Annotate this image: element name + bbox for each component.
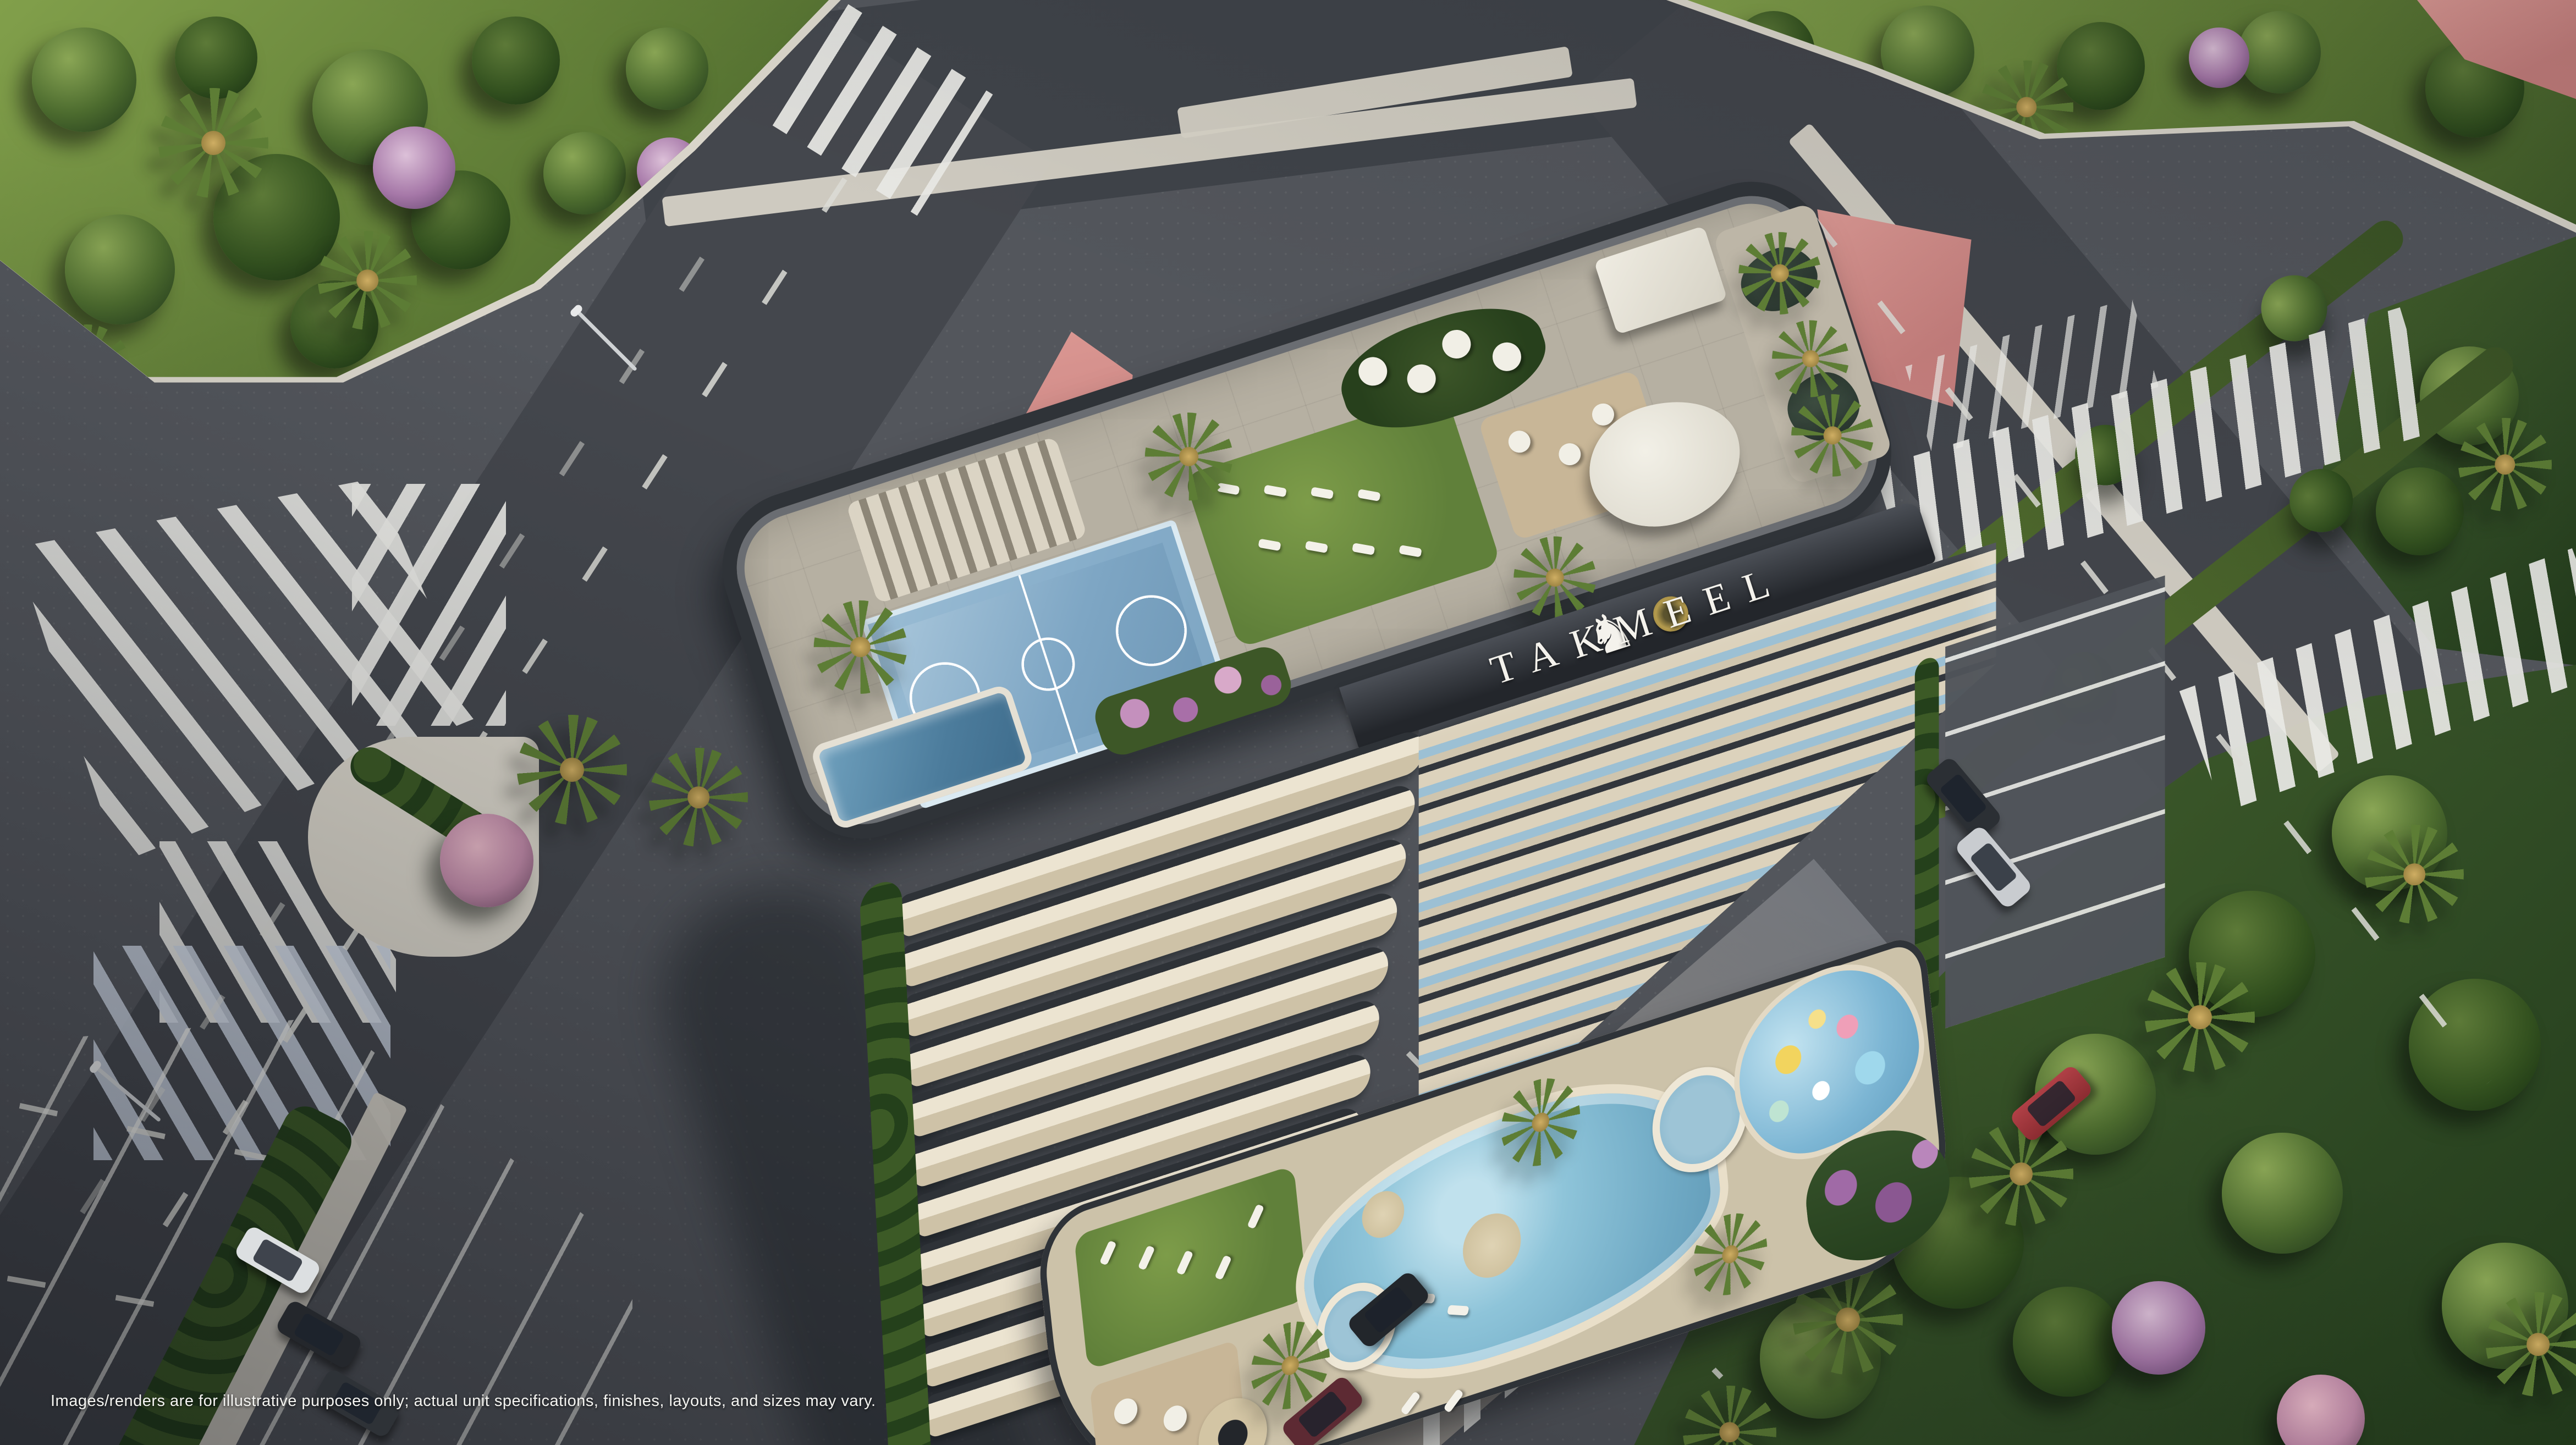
tree [175,16,257,99]
sun-lounger [1400,1391,1421,1416]
seating-pod [1403,361,1440,397]
palm-tree [43,324,131,412]
sun-lounger [1214,1255,1232,1280]
sun-lounger [1305,541,1328,553]
sun-lounger [1311,487,1334,499]
tree [2238,11,2321,93]
table [1163,1402,1188,1434]
sun-lounger [1443,1388,1463,1413]
tree [65,214,175,324]
tree [626,27,708,110]
rooftop-pavilion [1594,226,1727,335]
crosswalk-left-upper [352,484,506,726]
pool-island [1360,1185,1407,1244]
table [1506,428,1533,455]
sun-lounger [1176,1250,1193,1276]
tree [32,27,136,132]
table [1113,1396,1139,1427]
rooftop-palm-terrace [1713,202,1894,486]
rooftop-lawn [1184,391,1501,648]
sun-lounger [1099,1240,1117,1266]
pool-island [1460,1205,1523,1286]
palm-tree [1980,60,2073,154]
tree [2376,467,2464,555]
in-pool-lounger [1447,1305,1469,1315]
sun-lounger [1264,485,1287,498]
palm-tree [2458,418,2552,511]
palm-tree [517,715,627,825]
tree [543,132,626,214]
palm-tree [1728,221,1832,325]
sun-lounger [1258,539,1281,551]
sun-lounger [1247,1204,1264,1229]
tree [472,16,560,104]
sun-lounger [1352,543,1375,555]
palm-tree [649,748,748,847]
palm-tree [318,231,417,330]
flowering-tree [373,126,455,209]
tree [2409,979,2541,1111]
table [1556,440,1583,468]
seating-pod [1355,354,1391,390]
disclaimer-text: Images/renders are for illustrative purp… [51,1392,876,1410]
sun-lounger [1357,489,1380,501]
seating-pod [1439,326,1475,362]
sun-lounger [1399,545,1422,558]
flowering-tree [2277,1375,2365,1445]
palm-tree [2365,825,2464,924]
sun-lounger [1138,1245,1155,1271]
seating-pod [1489,339,1525,375]
flowering-tree [2189,27,2249,88]
palm-tree [158,88,268,198]
flowering-bush [440,814,533,907]
aerial-render-scene: TAKMEEL ♞ [0,0,2576,1445]
